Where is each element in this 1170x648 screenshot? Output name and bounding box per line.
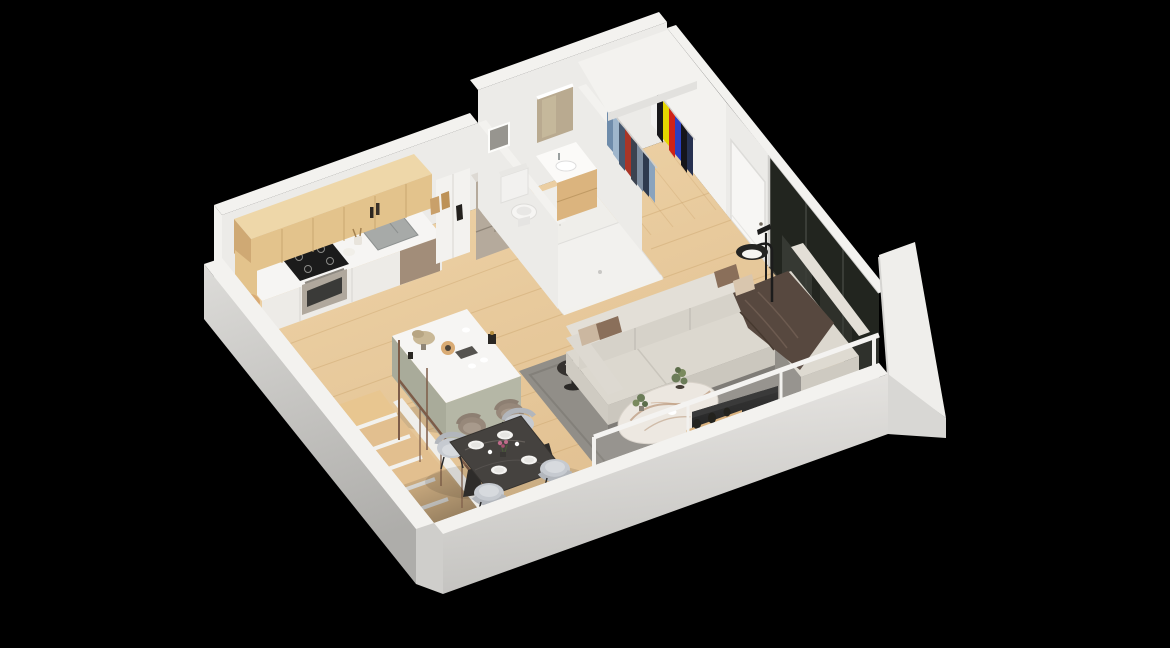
small-item	[408, 352, 413, 359]
bowl	[343, 248, 355, 256]
shower-drain	[598, 270, 602, 274]
cup	[468, 364, 476, 369]
bottle	[376, 203, 380, 215]
paper-bag	[441, 191, 450, 210]
basin	[556, 161, 576, 171]
vase	[421, 344, 426, 350]
corner-slab	[416, 523, 443, 594]
door-knob	[759, 222, 763, 226]
isometric-apartment-scene	[0, 0, 1170, 648]
utensil-crock	[354, 236, 362, 245]
tablet	[456, 204, 463, 221]
floor-plan-render	[0, 0, 1170, 648]
paper-bag	[430, 196, 440, 215]
bottle	[370, 207, 374, 218]
cup	[462, 328, 470, 333]
coffee-maker	[488, 334, 496, 344]
cup	[480, 358, 488, 363]
